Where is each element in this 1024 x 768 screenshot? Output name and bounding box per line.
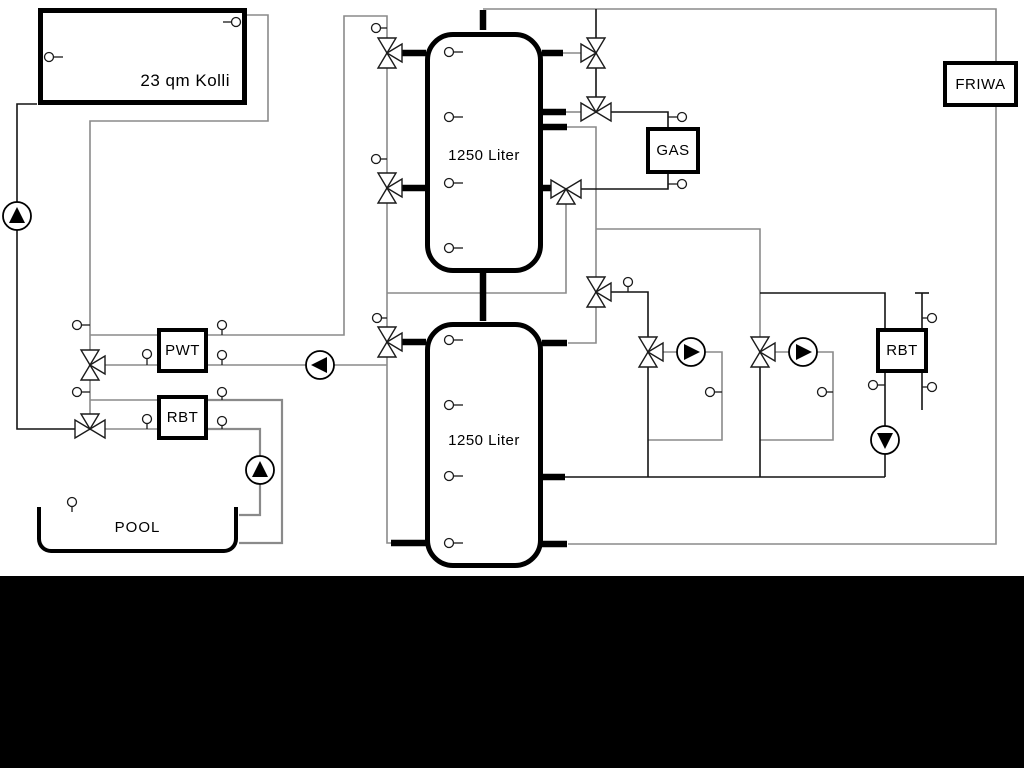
schematic-canvas: 23 qm Kolli 1250 Liter 1250 Liter GAS FR… — [0, 0, 1024, 768]
temperature-sensor-icon — [143, 350, 152, 366]
three-way-valve-icon — [639, 337, 663, 367]
solar-collector-box: 23 qm Kolli — [38, 8, 247, 105]
three-way-valve-icon — [378, 38, 402, 68]
temperature-sensor-icon — [372, 24, 388, 33]
three-way-valve-icon — [378, 173, 402, 203]
three-way-valve-icon — [551, 180, 581, 204]
pipe — [568, 307, 596, 343]
pool-label: POOL — [41, 519, 234, 536]
pipe — [483, 9, 996, 61]
pipe — [568, 107, 996, 544]
pump-icon — [871, 426, 899, 454]
temperature-sensor-icon — [218, 417, 227, 430]
temperature-sensor-icon — [624, 278, 633, 293]
gas-boiler-label: GAS — [656, 142, 689, 159]
pool-pipe — [208, 429, 260, 515]
rbt-right-box: RBT — [876, 328, 928, 373]
rbt-right-label: RBT — [886, 342, 918, 359]
temperature-sensor-icon — [922, 383, 937, 392]
gas-boiler-box: GAS — [646, 127, 700, 174]
pipe — [760, 352, 833, 440]
rbt-left-label: RBT — [167, 409, 199, 426]
three-way-valve-icon — [581, 38, 605, 68]
buffer-tank-bottom: 1250 Liter — [425, 322, 543, 568]
temperature-sensor-icon — [73, 321, 91, 330]
temperature-sensor-icon — [668, 113, 687, 122]
three-way-valve-icon — [581, 97, 611, 121]
pipe — [611, 112, 668, 127]
temperature-sensor-icon — [372, 155, 388, 164]
buffer-tank-top-label: 1250 Liter — [430, 147, 538, 164]
pipe — [611, 292, 648, 337]
pwt-label: PWT — [165, 342, 200, 359]
pump-icon — [3, 202, 31, 230]
pipe — [596, 229, 760, 337]
temperature-sensor-icon — [218, 388, 227, 401]
pipe — [17, 104, 75, 429]
rbt-left-box: RBT — [157, 395, 208, 440]
pipe — [387, 357, 391, 543]
three-way-valve-icon — [378, 327, 402, 357]
solar-collector-label: 23 qm Kolli — [140, 71, 230, 91]
pipe — [760, 293, 885, 328]
pool-box: POOL — [37, 507, 238, 553]
buffer-tank-bottom-label: 1250 Liter — [430, 432, 538, 449]
temperature-sensor-icon — [373, 314, 388, 323]
pump-icon — [306, 351, 334, 379]
temperature-sensor-icon — [143, 415, 152, 430]
pipe — [648, 352, 722, 440]
temperature-sensor-icon — [668, 180, 687, 189]
bottom-black-band — [0, 576, 1024, 768]
friwa-label: FRIWA — [955, 76, 1005, 93]
temperature-sensor-icon — [73, 388, 91, 397]
pump-icon — [246, 456, 274, 484]
buffer-tank-top: 1250 Liter — [425, 32, 543, 273]
temperature-sensor-icon — [218, 321, 227, 336]
pipe — [581, 174, 668, 189]
pipe — [567, 127, 596, 277]
pwt-box: PWT — [157, 328, 208, 373]
temperature-sensor-icon — [869, 381, 886, 390]
three-way-valve-icon — [751, 337, 775, 367]
temperature-sensor-icon — [922, 314, 937, 323]
three-way-valve-icon — [75, 414, 105, 438]
temperature-sensor-icon — [218, 351, 227, 366]
temperature-sensor-icon — [706, 388, 723, 397]
three-way-valve-icon — [587, 277, 611, 307]
temperature-sensor-icon — [818, 388, 834, 397]
three-way-valve-icon — [81, 350, 105, 380]
pump-icon — [789, 338, 817, 366]
pump-icon — [677, 338, 705, 366]
friwa-box: FRIWA — [943, 61, 1018, 107]
